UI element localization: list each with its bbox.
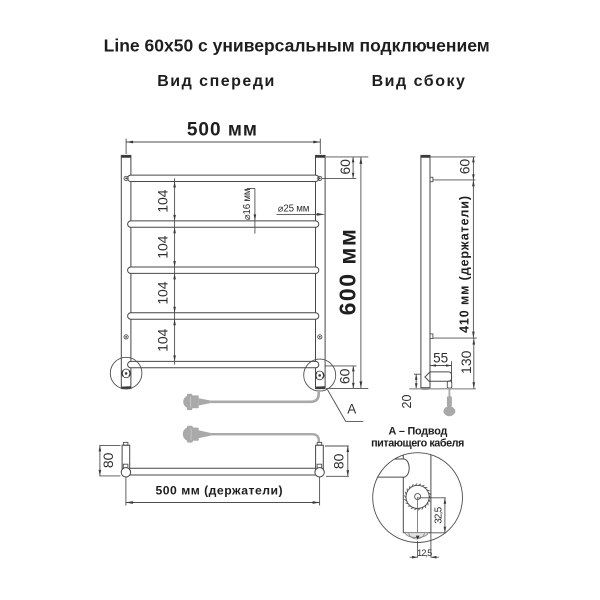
svg-text:Вид спереди: Вид спереди [157,73,276,90]
svg-text:А – Подвод: А – Подвод [388,425,447,437]
svg-text:Вид сбоку: Вид сбоку [372,73,467,90]
svg-text:⌀16 мм: ⌀16 мм [242,189,253,220]
svg-text:80: 80 [330,453,346,469]
svg-text:60: 60 [457,159,473,175]
svg-text:104: 104 [155,235,171,258]
svg-text:Line 60x50 с универсальным под: Line 60x50 с универсальным подключением [104,36,490,56]
svg-text:104: 104 [155,328,171,351]
svg-text:60: 60 [337,159,353,175]
svg-text:600 мм: 600 мм [335,228,361,316]
svg-text:⌀25 мм: ⌀25 мм [278,203,309,214]
svg-text:А: А [347,401,356,416]
svg-text:32,5: 32,5 [434,506,445,524]
svg-text:20: 20 [400,395,414,409]
svg-text:питающего кабеля: питающего кабеля [371,437,464,449]
svg-text:104: 104 [155,281,171,304]
svg-text:500 мм: 500 мм [187,119,258,140]
svg-text:55: 55 [433,351,448,366]
svg-text:410 мм (держатели): 410 мм (держатели) [458,195,472,333]
svg-text:12,5: 12,5 [417,548,432,558]
svg-text:80: 80 [100,452,116,468]
svg-text:104: 104 [155,189,171,212]
svg-text:500 мм (держатели): 500 мм (держатели) [155,484,283,498]
svg-text:130: 130 [458,350,474,374]
svg-text:60: 60 [337,368,353,384]
